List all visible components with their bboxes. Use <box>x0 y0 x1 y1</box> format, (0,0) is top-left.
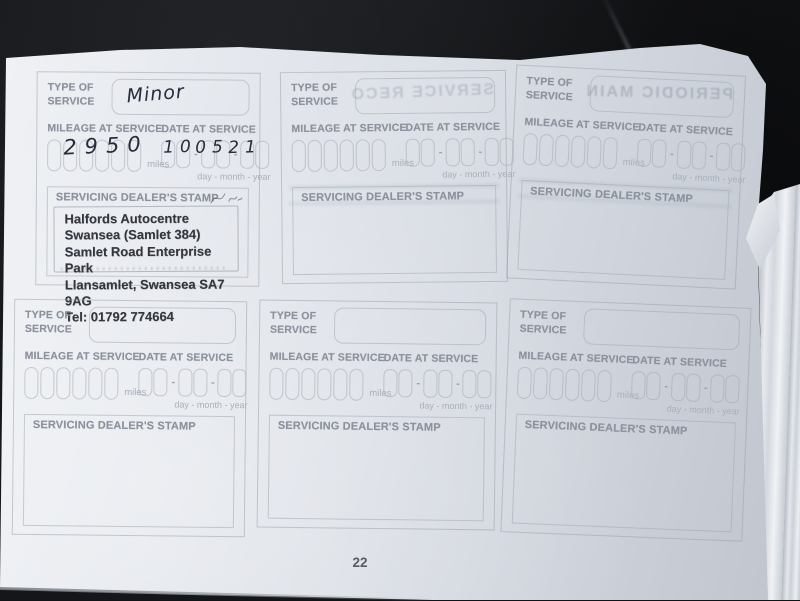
mileage-label: MILEAGE AT SERVICE <box>524 116 628 133</box>
mileage-digit-cell <box>597 370 612 403</box>
date-digit-cell <box>445 138 459 166</box>
mileage-digit-cell <box>333 368 347 400</box>
date-cells: - - <box>138 368 248 397</box>
type-of-service-field: Minor <box>111 79 249 116</box>
mileage-cells: miles <box>522 133 627 170</box>
mileage-digit-cell <box>372 139 386 171</box>
mileage-digit-cell <box>317 368 331 400</box>
date-digit-cell <box>460 138 474 166</box>
dealer-stamp-area: SERVICING DEALER'S STAMP <box>292 185 497 275</box>
type-of-service-label: TYPE OF SERVICE <box>526 72 585 105</box>
date-cells: - - 10 05 21 <box>161 140 271 169</box>
mileage-digit-cell <box>522 133 538 166</box>
date-digit-cell <box>710 374 725 403</box>
mileage-label: MILEAGE AT SERVICE <box>291 122 395 135</box>
type-of-service-field: PERIODIC MAIN <box>589 75 735 118</box>
service-entry-5: TYPE OF SERVICE MILEAGE AT SERVICE miles… <box>257 300 498 531</box>
date-digit-cell <box>463 370 477 398</box>
date-label: DATE AT SERVICE <box>405 121 514 134</box>
date-digit-cell <box>423 370 437 398</box>
date-label: DATE AT SERVICE <box>161 123 270 136</box>
date-digit-cell <box>691 141 706 170</box>
showthrough-ghost-text: PERIODIC MAIN <box>591 83 733 104</box>
dealer-stamp-label: SERVICING DEALER'S STAMP <box>516 415 734 440</box>
dealer-stamp-label: SERVICING DEALER'S STAMP <box>270 416 484 435</box>
date-digit-cell <box>421 139 435 167</box>
mileage-label: MILEAGE AT SERVICE <box>518 350 622 366</box>
mileage-digit-cell <box>554 135 570 168</box>
dealer-stamp-label: SERVICING DEALER'S STAMP <box>293 186 495 204</box>
date-digit-cell <box>631 371 646 400</box>
mileage-digit-cell <box>72 367 86 399</box>
date-separator: - <box>478 146 482 158</box>
date-cells: - - <box>406 138 516 167</box>
mileage-digit-cell <box>308 140 322 172</box>
date-digit-cell <box>233 369 247 397</box>
date-digit-cell <box>438 370 452 398</box>
mileage-digit-cell <box>581 369 596 402</box>
date-digit-cell <box>178 369 192 397</box>
date-digit-cell <box>731 143 746 172</box>
date-digit-cell <box>725 375 740 404</box>
date-separator: - <box>670 148 674 160</box>
date-digit-cell <box>685 373 700 402</box>
handwritten-mileage: 2950 <box>63 132 149 160</box>
type-of-service-field <box>89 307 236 345</box>
mileage-label: MILEAGE AT SERVICE <box>25 350 129 363</box>
date-format-hint: day - month - year <box>636 169 746 184</box>
service-entry-3: TYPE OF SERVICE PERIODIC MAIN MILEAGE AT… <box>506 65 746 290</box>
date-digit-cell <box>383 369 397 397</box>
mileage-cells: miles 2950 <box>47 139 151 172</box>
mileage-digit-cell <box>517 367 532 400</box>
handwritten-month: 05 <box>195 137 229 158</box>
date-digit-cell <box>478 370 492 398</box>
date-format-hint: day - month - year <box>630 402 740 416</box>
stamp-line: Samlet Road Enterprise Park <box>65 243 236 277</box>
type-of-service-field <box>334 307 486 345</box>
service-entry-4: TYPE OF SERVICE MILEAGE AT SERVICE miles… <box>12 299 247 537</box>
date-format-hint: day - month - year <box>138 399 247 410</box>
mileage-digit-cell <box>301 368 315 400</box>
service-entry-6: TYPE OF SERVICE MILEAGE AT SERVICE miles… <box>500 298 751 542</box>
date-separator: - <box>704 382 708 394</box>
type-of-service-label: TYPE OF SERVICE <box>519 306 578 339</box>
type-of-service-field <box>583 308 740 350</box>
mileage-digit-cell <box>269 368 283 400</box>
mileage-digit-cell <box>340 139 354 171</box>
mileage-digit-cell <box>24 367 38 399</box>
mileage-digit-cell <box>56 367 70 399</box>
date-digit-cell <box>652 139 667 168</box>
date-separator: - <box>416 377 420 389</box>
dealer-stamp-area: SERVICING DEALER'S STAMP <box>23 414 235 528</box>
dealer-stamp-label: SERVICING DEALER'S STAMP <box>25 415 234 433</box>
mileage-digit-cell <box>586 136 602 169</box>
date-cells: - - <box>637 139 748 172</box>
date-label: DATE AT SERVICE <box>638 122 748 139</box>
date-format-hint: day - month - year <box>383 400 492 411</box>
mileage-digit-cell <box>570 135 586 168</box>
mileage-cells: miles <box>292 139 396 172</box>
date-digit-cell <box>406 139 420 167</box>
mileage-digit-cell <box>538 134 554 167</box>
mileage-digit-cell <box>285 368 299 400</box>
date-digit-cell <box>485 138 499 166</box>
date-label: DATE AT SERVICE <box>139 351 248 364</box>
date-digit-cell <box>646 372 661 401</box>
handwritten-service-type: Minor <box>126 81 186 108</box>
handwritten-day: 10 <box>163 137 197 158</box>
page-number: 22 <box>340 555 380 570</box>
date-separator: - <box>664 381 668 393</box>
dealer-stamp-area: SERVICING DEALER'S STAMP Halfords Autoce… <box>46 186 249 277</box>
mileage-digit-cell <box>602 137 618 170</box>
date-digit-cell <box>670 373 685 402</box>
date-digit-cell <box>218 369 232 397</box>
date-digit-cell <box>193 369 207 397</box>
date-digit-cell <box>138 368 152 396</box>
mileage-digit-cell <box>324 140 338 172</box>
type-of-service-label: TYPE OF SERVICE <box>291 78 349 109</box>
mileage-digit-cell <box>292 140 306 172</box>
date-format-hint: day - month - year <box>406 169 515 180</box>
dealer-stamp-area: SERVICING DEALER'S STAMP <box>512 414 736 533</box>
mileage-label: MILEAGE AT SERVICE <box>270 351 374 364</box>
mileage-digit-cell <box>88 368 102 400</box>
mileage-digit-cell <box>104 368 118 400</box>
mileage-cells: miles <box>269 368 373 401</box>
date-digit-cell <box>716 142 731 171</box>
date-cells: - - <box>631 371 741 403</box>
mileage-digit-cell <box>565 369 580 402</box>
type-of-service-label: TYPE OF SERVICE <box>47 78 105 109</box>
date-digit-cell <box>676 140 691 169</box>
date-digit-cell <box>398 369 412 397</box>
date-separator: - <box>439 146 443 158</box>
service-entry-1: TYPE OF SERVICE Minor MILEAGE AT SERVICE… <box>35 71 260 287</box>
date-label: DATE AT SERVICE <box>632 354 742 370</box>
dealer-stamp-imprint: Halfords Autocentre Swansea (Samlet 384)… <box>53 206 238 273</box>
dealer-stamp-area: SERVICING DEALER'S STAMP <box>517 180 729 280</box>
service-entry-2: TYPE OF SERVICE SERVICE RECO MILEAGE AT … <box>280 70 508 284</box>
date-cells: - - <box>383 369 493 398</box>
dealer-stamp-area: SERVICING DEALER'S STAMP <box>268 415 485 522</box>
mileage-cells: miles <box>24 367 128 400</box>
mileage-digit-cell <box>549 368 564 401</box>
mileage-digit-cell <box>349 369 363 401</box>
mileage-digit-cell <box>47 139 61 171</box>
date-separator: - <box>710 150 714 162</box>
stamp-line: Swansea (Samlet 384) <box>65 227 236 244</box>
type-of-service-field: SERVICE RECO <box>355 77 495 114</box>
date-label: DATE AT SERVICE <box>384 352 493 365</box>
mileage-digit-cell <box>40 367 54 399</box>
showthrough-ghost-text: SERVICE RECO <box>356 81 495 104</box>
date-digit-cell <box>637 139 652 168</box>
date-separator: - <box>456 378 460 390</box>
date-separator: - <box>211 377 215 389</box>
date-separator: - <box>171 376 175 388</box>
mileage-cells: miles <box>517 367 622 403</box>
type-of-service-label: TYPE OF SERVICE <box>25 306 83 337</box>
type-of-service-label: TYPE OF SERVICE <box>270 307 328 338</box>
handwritten-year: 21 <box>228 137 262 158</box>
date-digit-cell <box>153 368 167 396</box>
dealer-stamp-label: SERVICING DEALER'S STAMP <box>522 181 729 207</box>
mileage-digit-cell <box>356 139 370 171</box>
mileage-digit-cell <box>533 367 548 400</box>
date-format-hint: day - month - year <box>161 171 270 182</box>
stamp-line: Halfords Autocentre <box>64 211 235 228</box>
